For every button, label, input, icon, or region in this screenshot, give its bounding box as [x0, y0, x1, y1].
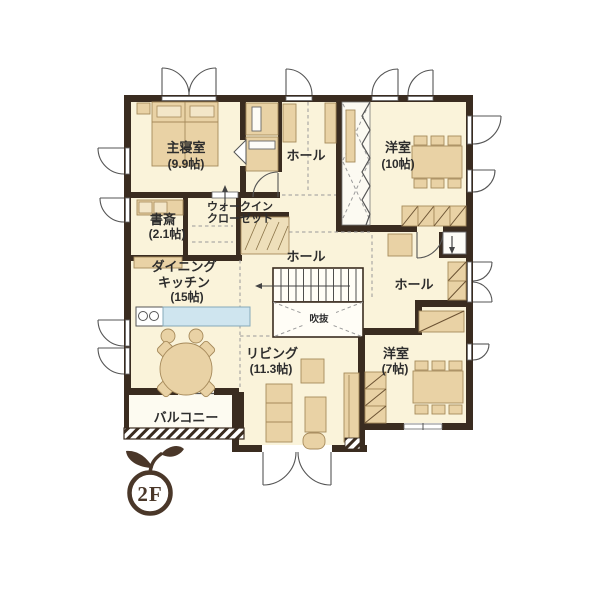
label-living-size: (11.3帖) [250, 361, 293, 376]
stool [161, 329, 175, 343]
coffee-table [305, 397, 326, 432]
floor-plan: 主寝室 (9.9帖) ホール 洋室 (10帖) 書斎 (2.1帖) ウォークイン… [0, 0, 600, 600]
label-study: 書斎 [150, 212, 176, 227]
bedside-table [137, 103, 150, 114]
label-western7-size: (7帖) [382, 361, 409, 376]
label-western7: 洋室 [383, 346, 409, 361]
label-hall-right: ホール [394, 277, 433, 292]
label-hall-top: ホール [286, 148, 325, 163]
floor-plan-page: 主寝室 (9.9帖) ホール 洋室 (10帖) 書斎 (2.1帖) ウォークイン… [0, 0, 600, 600]
western10-closet-row [402, 206, 466, 226]
label-dining-size: (15帖) [170, 289, 203, 304]
label-western10-size: (10帖) [381, 156, 414, 171]
label-master-bedroom-size: (9.9帖) [168, 156, 205, 171]
label-hall-center: ホール [286, 249, 325, 264]
dining-table-set [156, 340, 216, 398]
label-kitchen: キッチン [158, 275, 210, 290]
floor-living-lower [239, 388, 360, 445]
label-study-size: (2.1帖) [149, 226, 186, 241]
wardrobe [342, 102, 370, 225]
sofa [266, 384, 292, 442]
armchair [301, 359, 324, 383]
floor-logo: 2F [126, 446, 184, 513]
label-dining: ダイニング [151, 259, 216, 274]
label-balcony: バルコニー [154, 410, 219, 425]
label-master-bedroom: 主寝室 [166, 140, 205, 155]
round-dining-table [160, 343, 212, 395]
hatched-fixture [345, 438, 360, 449]
logo-leaf-right-icon [161, 446, 184, 457]
label-living: リビング [246, 346, 298, 361]
stool [189, 329, 203, 343]
rounded-chair [303, 433, 325, 449]
label-void: 吹抜 [309, 313, 329, 325]
western10-table-set [412, 136, 462, 188]
tv-board [344, 373, 359, 442]
logo-stem [150, 454, 161, 473]
label-wic-line1: ウォークイン [207, 200, 273, 213]
kitchen-counter [163, 307, 250, 326]
balcony-hatched-wall [124, 428, 244, 439]
label-wic-line2: クローゼット [207, 211, 273, 225]
table [413, 371, 463, 403]
floor-label: 2F [137, 482, 162, 506]
label-western10: 洋室 [385, 140, 411, 155]
logo-leaf-left-icon [126, 451, 153, 468]
